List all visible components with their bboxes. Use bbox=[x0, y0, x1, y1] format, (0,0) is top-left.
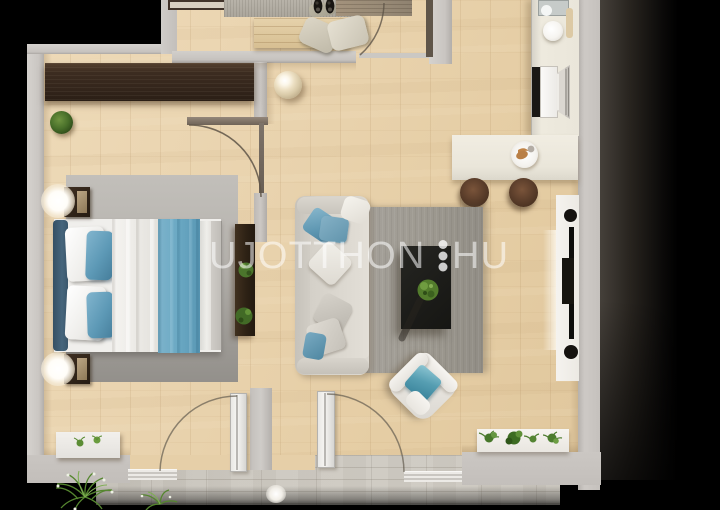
svg-text:UJOTTHON: UJOTTHON bbox=[209, 235, 425, 277]
svg-text:HU: HU bbox=[452, 235, 509, 277]
